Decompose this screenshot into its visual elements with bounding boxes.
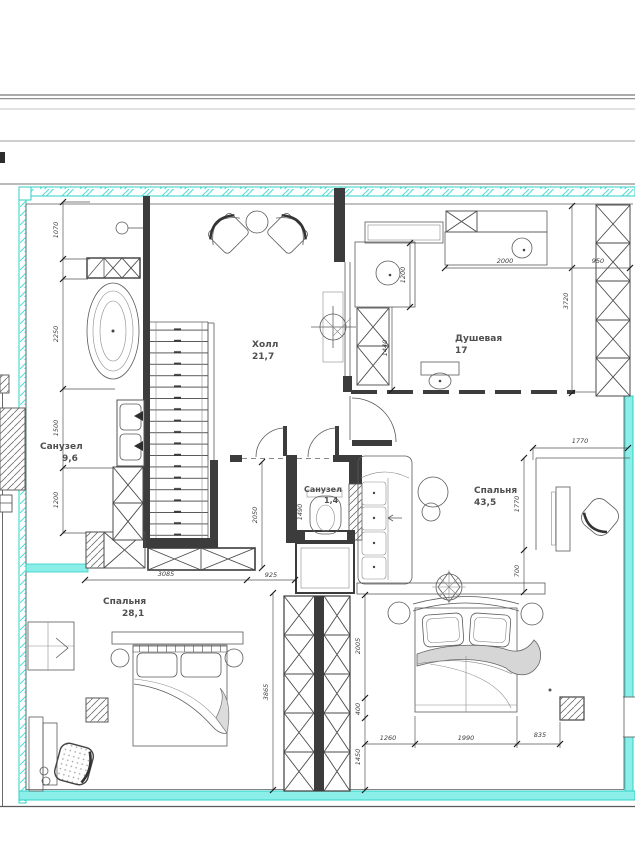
round-side-table bbox=[246, 211, 268, 233]
dim-1200-shower: 1200 bbox=[399, 267, 407, 284]
sofa bbox=[358, 456, 412, 584]
wall-stairs-bottom bbox=[143, 538, 218, 548]
desk-chair-left bbox=[53, 741, 96, 787]
dim-1990: 1990 bbox=[458, 734, 475, 742]
doors bbox=[256, 396, 396, 457]
room-label-wc: Санузел bbox=[304, 485, 342, 494]
bedroom-left-furniture bbox=[28, 622, 243, 791]
room-label-bathroom: Санузел bbox=[40, 442, 83, 452]
nightstand-square bbox=[560, 697, 584, 720]
room-area-shower: 17 bbox=[455, 346, 468, 356]
dim-1770-v: 1770 bbox=[513, 496, 521, 513]
room-label-bedroom-left: Спальня bbox=[103, 597, 146, 607]
dim-1770-h: 1770 bbox=[572, 437, 589, 445]
door-bedroom-right bbox=[350, 396, 396, 446]
exterior-wall-top bbox=[19, 187, 635, 196]
dim-700: 700 bbox=[513, 565, 521, 577]
exterior-wall-ledge bbox=[26, 564, 88, 572]
wardrobe bbox=[28, 622, 74, 670]
bed-right bbox=[357, 570, 545, 712]
dim-1070: 1070 bbox=[52, 222, 60, 239]
floor-lamp-table bbox=[418, 477, 448, 521]
dim-400: 400 bbox=[354, 703, 362, 715]
stairs bbox=[150, 322, 214, 539]
hall-furniture bbox=[204, 209, 356, 362]
dim-3865: 3865 bbox=[262, 684, 270, 701]
wall-corner-notch bbox=[19, 187, 31, 200]
desk-chair-right bbox=[577, 494, 622, 539]
desk-right bbox=[536, 458, 630, 551]
room-area-hall: 21,7 bbox=[252, 352, 274, 362]
right-column-strip bbox=[596, 205, 630, 396]
nightstand-round bbox=[521, 603, 543, 625]
dim-2000: 2000 bbox=[497, 257, 514, 265]
dim-1440: 1440 bbox=[381, 340, 389, 357]
window-right-wall bbox=[624, 697, 635, 737]
arrow-icon bbox=[388, 515, 402, 521]
double-vanity bbox=[117, 400, 144, 466]
chevron-right-icon bbox=[56, 638, 68, 658]
sprinkler-icon bbox=[116, 222, 143, 234]
armchair-left bbox=[204, 209, 252, 257]
dim-1450: 1450 bbox=[354, 749, 362, 766]
bench bbox=[365, 222, 443, 243]
room-label-bedroom-right: Спальня bbox=[474, 486, 517, 496]
armchair-right bbox=[264, 209, 312, 257]
room-area-bathroom: 9,6 bbox=[62, 454, 78, 464]
wall-hall-shower bbox=[334, 188, 345, 262]
dim-925: 925 bbox=[265, 571, 277, 579]
margin-marker bbox=[0, 152, 5, 163]
room-area-bedroom-left: 28,1 bbox=[122, 609, 144, 619]
desk-left bbox=[29, 717, 57, 791]
dim-2050: 2050 bbox=[251, 507, 259, 524]
dim-2250: 2250 bbox=[52, 326, 60, 343]
door-wc bbox=[308, 426, 339, 457]
dim-950: 950 bbox=[592, 257, 604, 265]
nightstand-round bbox=[388, 602, 410, 624]
wall-hatched-band bbox=[148, 548, 255, 570]
nightstand-round bbox=[225, 649, 243, 667]
bathtub bbox=[87, 283, 139, 379]
ceiling-light bbox=[311, 292, 356, 362]
bed-left bbox=[111, 632, 243, 746]
central-shaft bbox=[284, 596, 350, 791]
stair-railing bbox=[208, 323, 214, 460]
exterior-wall-left bbox=[19, 187, 26, 803]
bathroom-fixtures bbox=[87, 222, 144, 540]
dim-1490: 1490 bbox=[296, 504, 304, 521]
nightstand-round bbox=[111, 649, 129, 667]
shower-room-fixtures bbox=[355, 211, 547, 389]
wall-bathroom-stairs bbox=[143, 196, 150, 548]
room-label-shower: Душевая bbox=[455, 334, 502, 344]
room-area-bedroom-right: 43,5 bbox=[474, 498, 496, 508]
exterior-wall-bottom bbox=[19, 791, 635, 800]
room-label-hall: Холл bbox=[252, 340, 278, 350]
dim-1200-left: 1200 bbox=[52, 492, 60, 509]
floor-plan-sheet: Холл 21,7 Душевая 17 Санузел 9,6 Санузел… bbox=[0, 0, 635, 850]
floor-plan-drawing: Холл 21,7 Душевая 17 Санузел 9,6 Санузел… bbox=[0, 0, 635, 850]
dim-2005: 2005 bbox=[354, 638, 362, 655]
dim-1500: 1500 bbox=[52, 420, 60, 437]
shower-cabin bbox=[296, 543, 354, 593]
dim-1260: 1260 bbox=[380, 734, 397, 742]
bathroom-column bbox=[113, 467, 143, 540]
shelf-unit bbox=[446, 211, 547, 232]
dim-3085: 3085 bbox=[158, 570, 175, 578]
door-corridor-left bbox=[256, 426, 287, 457]
wall-stairs-right bbox=[210, 460, 218, 538]
blanket bbox=[417, 640, 541, 675]
bathroom-cabinet bbox=[87, 258, 140, 278]
wall-wc-left bbox=[286, 455, 297, 543]
toilet-shower-room bbox=[421, 362, 459, 389]
dim-835: 835 bbox=[534, 731, 546, 739]
dim-3720: 3720 bbox=[562, 293, 570, 310]
rug-square bbox=[86, 698, 108, 722]
room-area-wc: 1,4 bbox=[324, 496, 339, 505]
